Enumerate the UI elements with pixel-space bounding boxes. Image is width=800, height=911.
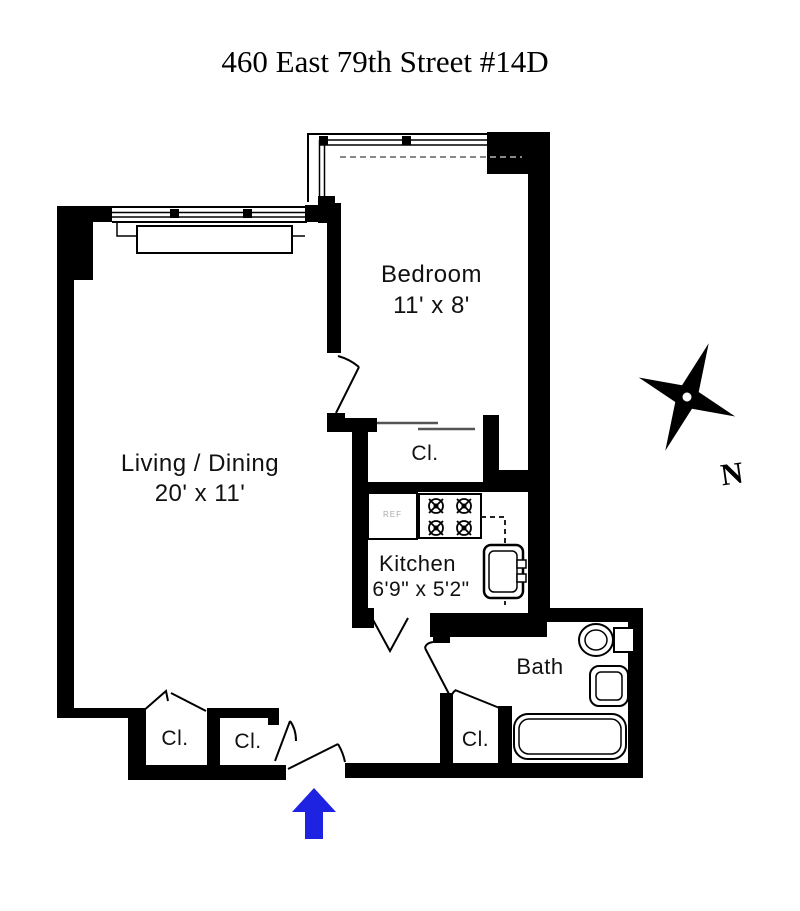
toilet-icon	[579, 624, 634, 656]
stove-icon	[419, 494, 481, 538]
bath-sink-icon	[590, 666, 628, 706]
radiator-icon	[137, 226, 292, 253]
floorplan: 460 East 79th Street #14D Living / Dinin…	[0, 0, 800, 911]
entry-arrow-icon	[292, 788, 336, 839]
compass-rose-icon	[617, 324, 757, 471]
kitchen-dimensions: 6'9" x 5'2"	[355, 579, 487, 601]
bedroom-closet-label: Cl.	[390, 443, 460, 465]
sliding-door	[377, 423, 475, 429]
hall-closet-right-label: Cl.	[219, 731, 277, 753]
plan-title: 460 East 79th Street #14D	[0, 44, 770, 80]
bath-closet-label: Cl.	[448, 729, 503, 751]
bedroom-label: Bedroom	[334, 262, 529, 287]
compass-north-label: N	[710, 453, 755, 494]
refrigerator-label: REF	[370, 510, 415, 519]
living-dining-dimensions: 20' x 11'	[75, 481, 325, 506]
bath-label: Bath	[505, 655, 575, 678]
kitchen-label: Kitchen	[360, 552, 475, 575]
bedroom-dimensions: 11' x 8'	[334, 293, 529, 318]
kitchen-sink-icon	[484, 545, 526, 598]
living-dining-label: Living / Dining	[75, 451, 325, 476]
hall-closet-left-label: Cl.	[145, 728, 205, 750]
bathtub-icon	[514, 714, 626, 759]
